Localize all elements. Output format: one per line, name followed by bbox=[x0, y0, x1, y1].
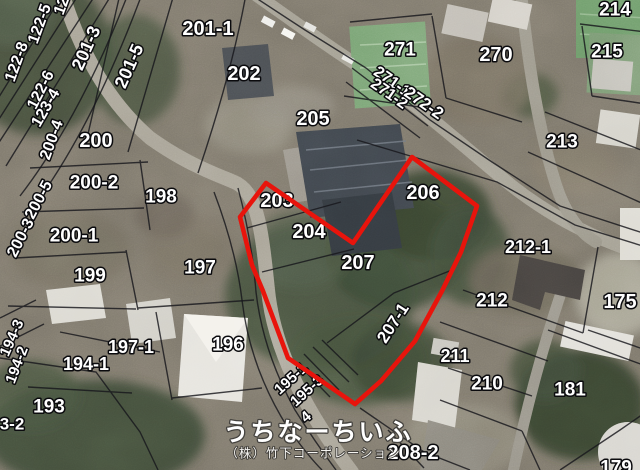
parcel-label-194-1: 194-1 bbox=[63, 354, 109, 374]
parcel-label-198: 198 bbox=[145, 187, 177, 208]
parcel-label-200-1: 200-1 bbox=[50, 226, 99, 247]
parcel-label-197: 197 bbox=[184, 258, 216, 279]
watermark: うちなーちいふ （株）竹下コーポレーション bbox=[223, 418, 412, 461]
parcel-label-3-2: 3-2 bbox=[0, 415, 24, 434]
parcel-label-200-2: 200-2 bbox=[70, 173, 119, 194]
parcel-label-271: 271 bbox=[384, 40, 416, 61]
map-viewport[interactable]: 201-1202205271271-1271-2272-227021421521… bbox=[0, 0, 640, 470]
parcel-label-213: 213 bbox=[546, 132, 578, 153]
parcel-label-204: 204 bbox=[292, 221, 326, 243]
parcel-label-270: 270 bbox=[479, 44, 512, 66]
parcel-label-210: 210 bbox=[471, 374, 503, 395]
parcel-label-215: 215 bbox=[591, 42, 623, 63]
watermark-title: うちなーちいふ bbox=[223, 418, 412, 447]
cadastral-aerial-map: 201-1202205271271-1271-2272-227021421521… bbox=[0, 0, 640, 470]
watermark-company: （株）竹下コーポレーション bbox=[225, 446, 400, 461]
parcel-label-175: 175 bbox=[603, 291, 636, 313]
parcel-label-201-1: 201-1 bbox=[182, 18, 233, 40]
parcel-label-179: 179 bbox=[600, 458, 632, 470]
parcel-label-206: 206 bbox=[406, 182, 439, 204]
parcel-label-207: 207 bbox=[341, 252, 374, 274]
parcel-label-212-1: 212-1 bbox=[505, 237, 551, 257]
parcel-label-193: 193 bbox=[33, 397, 65, 418]
parcel-label-200: 200 bbox=[79, 130, 112, 152]
parcel-label-205: 205 bbox=[296, 108, 329, 130]
parcel-label-212: 212 bbox=[476, 291, 508, 312]
parcel-label-202: 202 bbox=[227, 63, 260, 85]
parcel-label-214: 214 bbox=[599, 0, 631, 21]
parcel-label-197-1: 197-1 bbox=[108, 337, 154, 357]
parcel-label-199: 199 bbox=[74, 266, 106, 287]
parcel-label-181: 181 bbox=[554, 380, 586, 401]
parcel-label-211: 211 bbox=[440, 346, 469, 366]
parcel-label-196: 196 bbox=[212, 335, 244, 356]
